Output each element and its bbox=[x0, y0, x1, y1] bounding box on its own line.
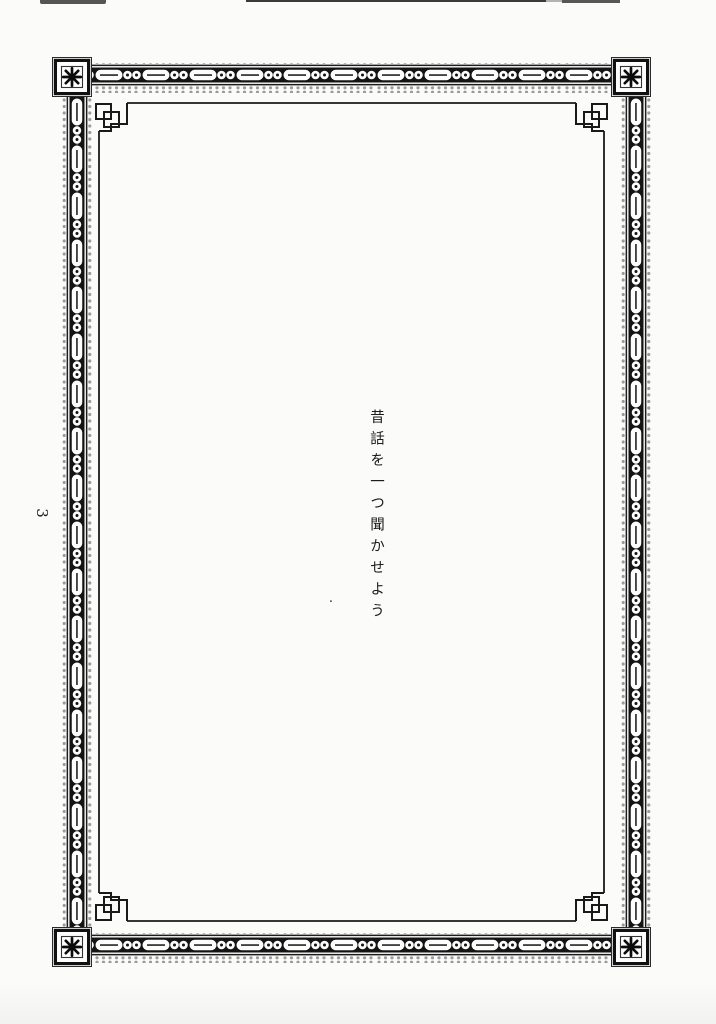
scan-artifact-smudge bbox=[40, 0, 106, 4]
inner-rule-border bbox=[99, 103, 604, 921]
scan-artifact-line bbox=[246, 0, 546, 2]
ornamental-frame bbox=[0, 0, 716, 1024]
frame-band-right bbox=[621, 97, 651, 927]
fret-corner-icon bbox=[96, 103, 607, 921]
asterisk-corner-icon bbox=[612, 928, 651, 967]
asterisk-corner-icon bbox=[53, 58, 92, 97]
frame-band-top bbox=[92, 63, 611, 93]
scan-artifact-line bbox=[546, 0, 562, 2]
asterisk-corner-icon bbox=[53, 928, 92, 967]
scanned-page: 昔話を一つ聞かせよう . 3 bbox=[0, 0, 716, 1024]
frame-band-bottom bbox=[92, 933, 611, 963]
stray-dot: . bbox=[326, 592, 336, 606]
body-text-vertical: 昔話を一つ聞かせよう bbox=[366, 409, 387, 639]
scan-artifact-line bbox=[562, 0, 620, 3]
asterisk-corner-icon bbox=[612, 58, 651, 97]
frame-band-left bbox=[62, 97, 92, 927]
page-number: 3 bbox=[32, 503, 52, 523]
